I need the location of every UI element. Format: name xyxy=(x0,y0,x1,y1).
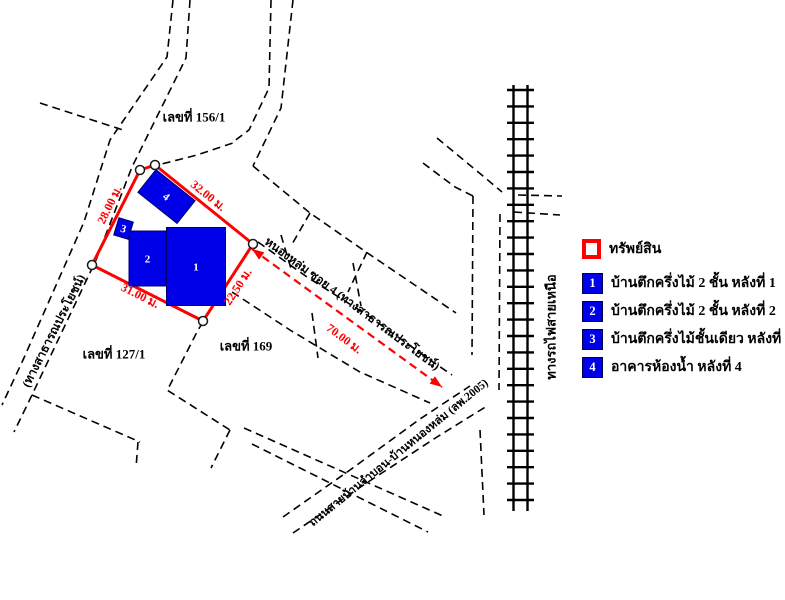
parcel-127-south-dashed-line xyxy=(32,395,140,442)
soi-tick-2-dashed-line xyxy=(353,263,361,306)
rail-side-road-s-dashed-line xyxy=(480,430,484,515)
building-2: 2 xyxy=(129,231,166,286)
ne-stub-2-dashed-line xyxy=(348,252,367,292)
parcel-169-stub-dashed-line xyxy=(211,430,230,468)
distance-arrowhead xyxy=(430,376,442,387)
rail-stub-north-dashed-line xyxy=(437,138,502,192)
building-3-swatch: 3 xyxy=(582,329,603,350)
building-1-number: 1 xyxy=(193,261,199,273)
soi-tick-1-dashed-line xyxy=(281,235,292,272)
legend-item-3-label: บ้านตึกครึ่งไม้ชั้นเดียว หลังที่ 3 xyxy=(611,328,785,350)
property-map: 1234 เลขที่ 156/1เลขที่ 127/1เลขที่ 169ห… xyxy=(0,0,785,600)
building-2-swatch: 2 xyxy=(582,301,603,322)
left-road-west-dashed-line xyxy=(2,0,173,405)
property-outline-swatch xyxy=(582,239,601,259)
north-boundary-dashed-line xyxy=(150,143,233,167)
distance-arrowhead xyxy=(252,249,264,260)
survey-point xyxy=(199,317,208,326)
left-road-east-dashed-line xyxy=(14,0,190,432)
building-4: 4 xyxy=(138,170,195,224)
main-road-north-dashed-line xyxy=(283,386,470,517)
parcel-127-stub-dashed-line xyxy=(136,442,138,468)
soi-north-edge-dashed-line xyxy=(258,242,452,375)
survey-point xyxy=(136,166,145,175)
building-1: 1 xyxy=(167,228,226,306)
rail-east-1-dashed-line xyxy=(518,195,562,196)
legend-item-1-label: บ้านตึกครึ่งไม้ 2 ชั้น หลังที่ 1 xyxy=(611,272,776,294)
legend-item-1: 1 บ้านตึกครึ่งไม้ 2 ชั้น หลังที่ 1 xyxy=(582,272,785,294)
rail-stub-south-dashed-line xyxy=(423,163,473,196)
rail-side-road-w-dashed-line xyxy=(472,196,473,355)
rail-side-road-e-dashed-line xyxy=(499,214,500,390)
building-2-number: 2 xyxy=(145,253,151,265)
rail-east-2-dashed-line xyxy=(514,212,560,215)
building-4-swatch: 4 xyxy=(582,357,603,378)
ne-parallel-dashed-line xyxy=(253,166,456,313)
legend-item-2-label: บ้านตึกครึ่งไม้ 2 ชั้น หลังที่ 2 xyxy=(611,300,776,322)
legend-property-label: ทรัพย์สิน xyxy=(609,238,661,260)
survey-point xyxy=(151,161,160,170)
main-road-south-dashed-line xyxy=(293,406,487,533)
parcel-169-west-dashed-line xyxy=(167,322,230,430)
cross-road-south-dashed-line xyxy=(252,444,428,532)
legend-property-row: ทรัพย์สิน xyxy=(582,238,785,260)
legend-item-2: 2 บ้านตึกครึ่งไม้ 2 ชั้น หลังที่ 2 xyxy=(582,300,785,322)
soi-south-edge-dashed-line xyxy=(232,292,430,403)
road156-east-dashed-line xyxy=(253,0,293,166)
road156-west-dashed-line xyxy=(233,0,271,142)
cross-road-north-dashed-line xyxy=(244,428,443,516)
legend-item-4: 4 อาคารห้องน้ำ หลังที่ 4 xyxy=(582,356,785,378)
ne-stub-1-dashed-line xyxy=(291,213,310,246)
legend: ทรัพย์สิน 1 บ้านตึกครึ่งไม้ 2 ชั้น หลังท… xyxy=(582,238,785,384)
survey-point xyxy=(249,240,258,249)
legend-item-3: 3 บ้านตึกครึ่งไม้ชั้นเดียว หลังที่ 3 xyxy=(582,328,785,350)
top-cross-line-dashed-line xyxy=(40,103,123,130)
legend-item-4-label: อาคารห้องน้ำ หลังที่ 4 xyxy=(611,356,742,378)
survey-point xyxy=(88,261,97,270)
building-1-swatch: 1 xyxy=(582,273,603,294)
soi-tick-3-dashed-line xyxy=(312,313,318,358)
distance-arrow xyxy=(252,249,442,387)
